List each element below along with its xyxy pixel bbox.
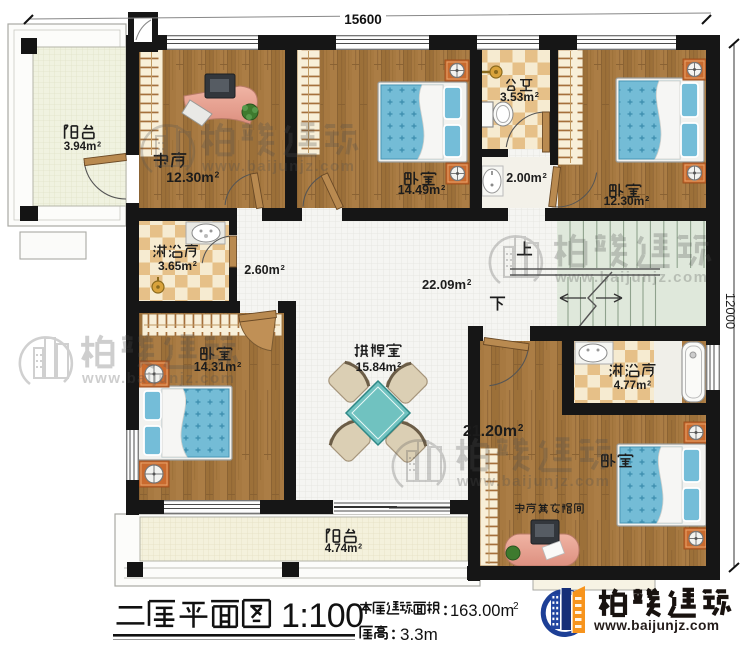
svg-text:2: 2 [513, 601, 519, 612]
svg-text:2: 2 [193, 259, 197, 268]
svg-text:3.3m: 3.3m [400, 625, 438, 644]
svg-text:2: 2 [647, 379, 651, 387]
svg-text:2.00m: 2.00m [506, 171, 541, 185]
svg-text:14.49m: 14.49m [398, 183, 440, 197]
svg-text:22.09m: 22.09m [422, 277, 466, 292]
svg-text:4.74m: 4.74m [325, 543, 358, 555]
svg-text:4.77m: 4.77m [614, 380, 647, 392]
svg-text:www.baijunjz.com: www.baijunjz.com [81, 370, 235, 387]
svg-text:www.baijunjz.com: www.baijunjz.com [593, 618, 719, 633]
svg-text:www.baijunjz.com: www.baijunjz.com [554, 269, 708, 286]
svg-text:12.30m: 12.30m [604, 194, 645, 208]
svg-text:2.60m: 2.60m [244, 263, 279, 277]
svg-text:163.00m: 163.00m [450, 602, 514, 620]
svg-text:2: 2 [543, 171, 547, 180]
svg-text:2: 2 [358, 542, 362, 550]
svg-text:2: 2 [397, 360, 401, 369]
svg-text:www.baijunjz.com: www.baijunjz.com [201, 158, 355, 175]
svg-text:3.94m: 3.94m [64, 141, 97, 153]
svg-text:2: 2 [645, 194, 649, 203]
svg-text:21.20m: 21.20m [463, 423, 517, 440]
svg-text:1:100: 1:100 [281, 597, 364, 635]
svg-text:15.84m: 15.84m [356, 360, 397, 374]
svg-text:2: 2 [281, 263, 285, 272]
svg-text:www.baijunjz.com: www.baijunjz.com [456, 473, 610, 490]
svg-text:15600: 15600 [344, 12, 382, 27]
svg-text:2: 2 [535, 90, 539, 99]
svg-text:2: 2 [441, 183, 445, 192]
svg-text:12000: 12000 [723, 293, 738, 329]
svg-text:3.65m: 3.65m [158, 259, 192, 273]
svg-text:2: 2 [97, 140, 101, 148]
svg-text:3.53m: 3.53m [500, 90, 534, 104]
svg-text:2: 2 [467, 278, 472, 287]
svg-text:2: 2 [518, 423, 524, 434]
